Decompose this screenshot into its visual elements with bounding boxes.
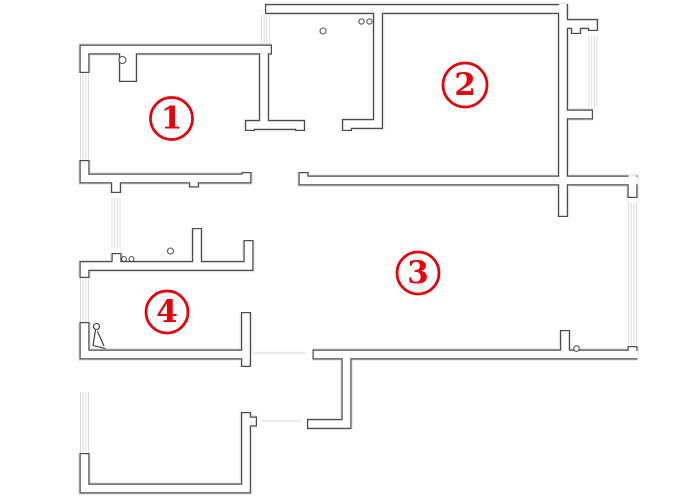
room-number: 1 bbox=[161, 101, 183, 137]
room-number: 4 bbox=[156, 294, 178, 330]
room-number: 3 bbox=[407, 255, 429, 291]
room-number: 2 bbox=[454, 67, 476, 103]
floor-plan: 1234 bbox=[0, 0, 700, 500]
floorplan-svg: 1234 bbox=[0, 0, 700, 500]
